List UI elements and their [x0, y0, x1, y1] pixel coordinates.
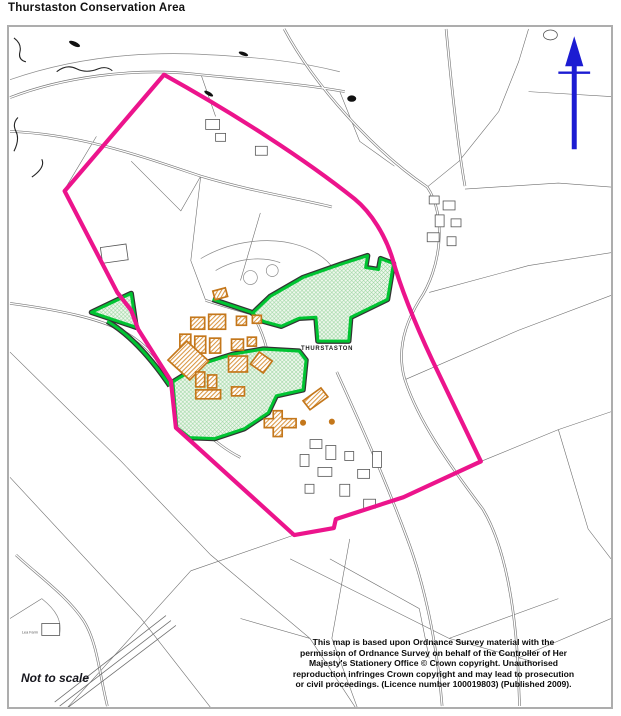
map-canvas: THURSTASTON Lea Farm — [9, 27, 611, 707]
copyright-line: permission of Ordnance Survey on behalf … — [261, 648, 606, 659]
field-boundaries — [10, 29, 611, 707]
map-frame: THURSTASTON Lea Farm This map is based u… — [7, 25, 613, 709]
copyright-line: reproduction infringes Crown copyright a… — [261, 669, 606, 680]
copyright-line: This map is based upon Ordnance Survey m… — [261, 637, 606, 648]
copyright-line: Majesty's Stationery Office © Crown copy… — [261, 658, 606, 669]
farm-label: Lea Farm — [22, 630, 38, 634]
copyright-line: or civil proceedings. (Licence number 10… — [261, 679, 606, 690]
page-title: Thurstaston Conservation Area — [8, 2, 185, 14]
hall-building — [303, 388, 328, 410]
scale-note: Not to scale — [21, 671, 89, 685]
copyright-note: This map is based upon Ordnance Survey m… — [261, 637, 606, 690]
page: Thurstaston Conservation Area — [0, 0, 621, 716]
place-label: THURSTASTON — [301, 346, 353, 352]
